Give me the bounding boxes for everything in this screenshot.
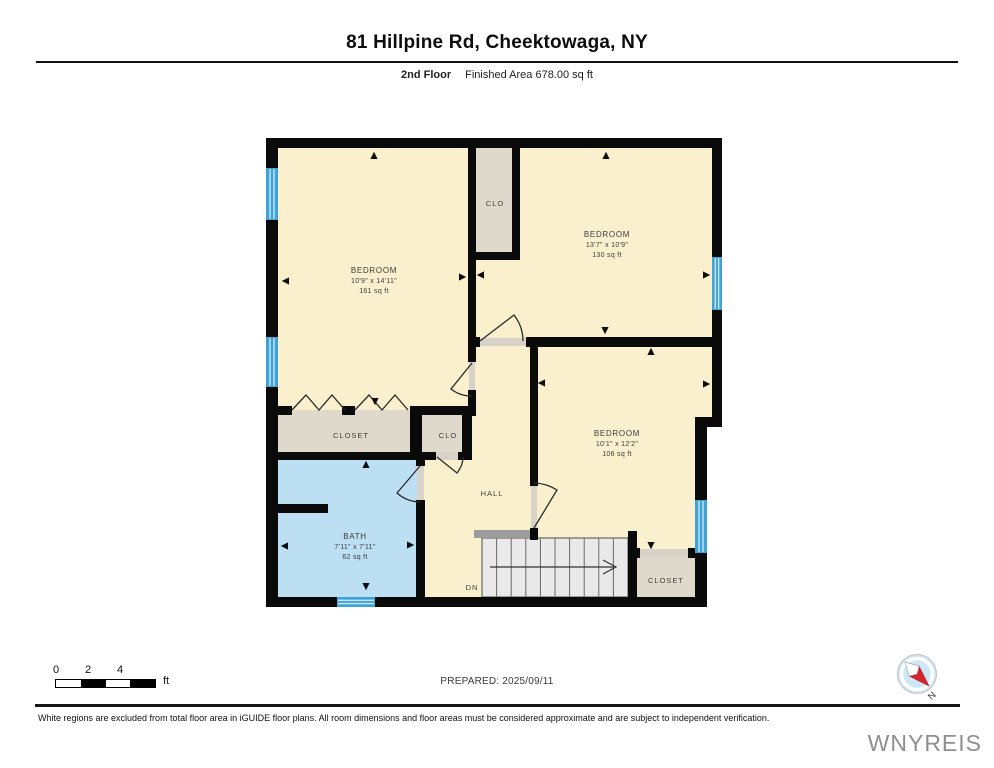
window [712,257,722,310]
footer-divider [35,704,960,707]
closet-label: CLOSET [333,431,369,440]
stairs-down-label: DN [466,583,479,592]
watermark: WNYREIS [868,730,982,757]
scale-tick: 2 [85,664,91,676]
room-label: BATH [343,532,367,541]
header-divider [36,61,958,63]
room-area: 62 sq ft [342,554,367,561]
room-dims: 7'11" x 7'11" [334,544,375,551]
room-label: BEDROOM [351,266,397,275]
window [337,597,375,607]
room-dims: 10'1" x 12'2" [596,441,639,448]
room-label: BEDROOM [584,230,630,239]
floor-subtitle: 2nd FloorFinished Area 678.00 sq ft [0,69,994,81]
window [695,500,707,553]
room-label: BEDROOM [594,429,640,438]
room-dims: 10'9" x 14'11" [351,278,397,285]
clo-label: CLO [486,199,504,208]
finished-area-label: Finished Area 678.00 sq ft [465,69,593,81]
compass-icon: N [893,652,943,702]
room-dims: 13'7" x 10'9" [586,242,629,249]
stairs-landing-bar [474,530,530,538]
scale-tick: 4 [117,664,123,676]
page-title: 81 Hillpine Rd, Cheektowaga, NY [0,32,994,54]
room-bath [274,456,419,602]
room-area: 130 sq ft [592,252,622,259]
floor-plan-drawing: BEDROOM 10'9" x 14'11" 161 sq ft BEDROOM… [262,132,734,614]
scale-tick: 0 [53,664,59,676]
floor-plan-page: 81 Hillpine Rd, Cheektowaga, NY 2nd Floo… [0,0,994,768]
window [266,168,278,220]
prepared-date: PREPARED: 2025/09/11 [0,676,994,687]
room-area: 161 sq ft [359,288,389,295]
hall-label: HALL [481,489,504,498]
stairs [474,530,628,597]
clo-label: CLO [439,431,457,440]
disclaimer-text: White regions are excluded from total fl… [38,713,958,723]
room-area: 106 sq ft [602,451,632,458]
window [266,337,278,387]
closet-label: CLOSET [648,576,684,585]
floor-label: 2nd Floor [401,69,451,81]
